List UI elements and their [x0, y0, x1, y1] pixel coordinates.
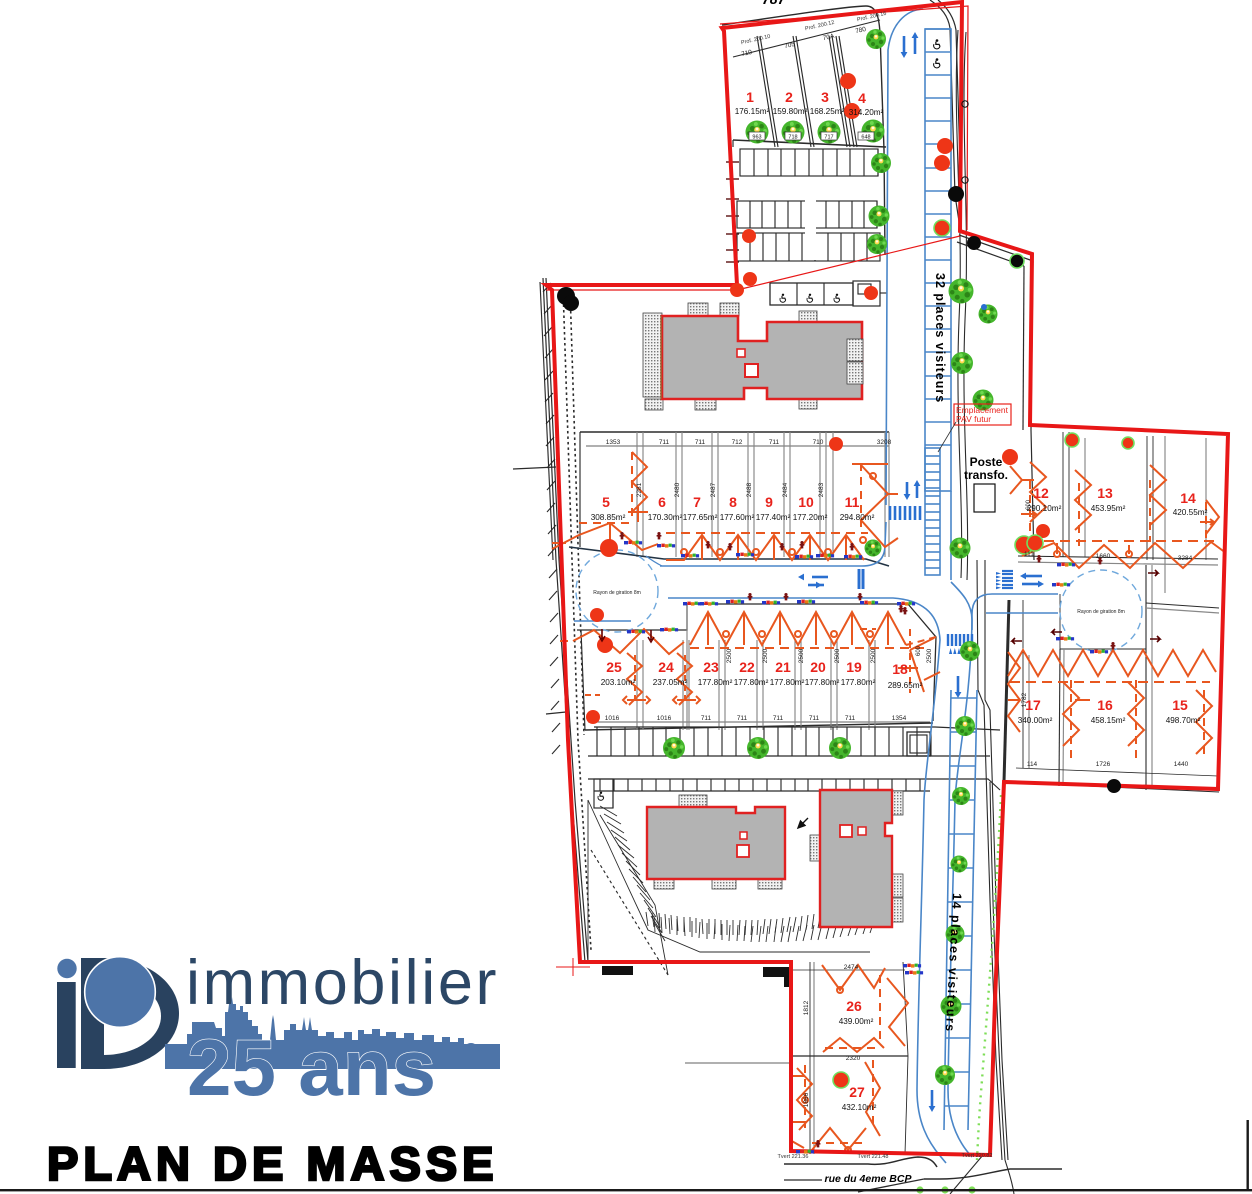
svg-text:718: 718	[788, 135, 797, 141]
svg-text:177.80m²: 177.80m²	[805, 678, 840, 687]
svg-text:transfo.: transfo.	[964, 468, 1008, 482]
svg-text:22: 22	[739, 659, 755, 675]
svg-text:420.55m²: 420.55m²	[1173, 508, 1208, 517]
svg-text:23: 23	[703, 659, 719, 675]
svg-text:14: 14	[1180, 490, 1196, 506]
svg-text:1016: 1016	[605, 715, 620, 722]
svg-text:2500: 2500	[834, 648, 841, 663]
svg-text:314.20m²: 314.20m²	[849, 108, 884, 117]
svg-text:Tvert 220.82: Tvert 220.82	[962, 1153, 993, 1159]
svg-text:170.30m²: 170.30m²	[648, 513, 683, 522]
svg-text:2281: 2281	[636, 482, 643, 497]
svg-text:2320: 2320	[846, 1055, 861, 1062]
svg-text:25 ans: 25 ans	[187, 1023, 436, 1112]
svg-text:2500: 2500	[870, 648, 877, 663]
svg-text:12: 12	[1033, 485, 1049, 501]
svg-text:432.10m²: 432.10m²	[842, 1103, 877, 1112]
svg-text:26: 26	[846, 998, 862, 1014]
svg-text:600: 600	[1026, 499, 1032, 510]
svg-text:1354: 1354	[892, 715, 907, 722]
svg-text:1866: 1866	[803, 1092, 810, 1107]
svg-text:711: 711	[773, 715, 784, 722]
svg-text:177.60m²: 177.60m²	[720, 513, 755, 522]
svg-text:18: 18	[892, 661, 908, 677]
svg-text:439.00m²: 439.00m²	[839, 1017, 874, 1026]
svg-text:1660: 1660	[1096, 553, 1111, 560]
svg-text:Tvert 221.48: Tvert 221.48	[858, 1154, 889, 1160]
svg-text:3: 3	[821, 89, 829, 105]
svg-text:176.15m²: 176.15m²	[735, 107, 770, 116]
svg-text:32 places visiteurs: 32 places visiteurs	[933, 273, 947, 403]
svg-text:16: 16	[1097, 697, 1113, 713]
svg-text:711: 711	[695, 439, 706, 446]
svg-text:20: 20	[810, 659, 826, 675]
svg-text:PLAN DE MASSE: PLAN DE MASSE	[47, 1137, 499, 1190]
svg-text:2488: 2488	[746, 482, 753, 497]
svg-text:2500: 2500	[798, 648, 805, 663]
svg-text:177.65m²: 177.65m²	[683, 513, 718, 522]
svg-text:203.10m²: 203.10m²	[601, 678, 636, 687]
svg-text:3208: 3208	[877, 439, 892, 446]
svg-text:1726: 1726	[1096, 761, 1111, 768]
svg-text:2500: 2500	[726, 648, 733, 663]
svg-text:177.20m²: 177.20m²	[793, 513, 828, 522]
svg-text:453.95m²: 453.95m²	[1091, 504, 1126, 513]
svg-text:294.80m²: 294.80m²	[840, 513, 875, 522]
svg-text:19: 19	[846, 659, 862, 675]
svg-text:2484: 2484	[782, 482, 789, 497]
svg-text:963: 963	[752, 135, 761, 141]
svg-text:PAV futur: PAV futur	[956, 414, 991, 424]
svg-text:1782: 1782	[1021, 692, 1028, 707]
svg-text:600: 600	[916, 645, 922, 656]
svg-text:rue du 4eme BCP: rue du 4eme BCP	[825, 1173, 913, 1185]
svg-text:6: 6	[658, 494, 666, 510]
svg-text:711: 711	[659, 439, 670, 446]
svg-text:2500: 2500	[926, 648, 933, 663]
svg-text:177.80m²: 177.80m²	[841, 678, 876, 687]
svg-text:1440: 1440	[1174, 761, 1189, 768]
svg-text:177.80m²: 177.80m²	[770, 678, 805, 687]
svg-text:2474: 2474	[844, 964, 859, 971]
svg-text:Rayon de giration 8m: Rayon de giration 8m	[1077, 609, 1125, 615]
svg-text:2480: 2480	[674, 482, 681, 497]
svg-text:159.80m²: 159.80m²	[773, 107, 808, 116]
svg-text:24: 24	[658, 659, 674, 675]
svg-text:114: 114	[1027, 761, 1038, 768]
svg-text:2487: 2487	[710, 482, 717, 497]
svg-text:8: 8	[729, 494, 737, 510]
svg-text:7: 7	[693, 494, 701, 510]
svg-text:711: 711	[809, 715, 820, 722]
svg-text:2: 2	[785, 89, 793, 105]
svg-text:5: 5	[602, 494, 610, 510]
svg-text:458.15m²: 458.15m²	[1091, 716, 1126, 725]
svg-text:648: 648	[861, 135, 870, 141]
svg-text:11: 11	[845, 494, 860, 510]
svg-text:2500: 2500	[762, 648, 769, 663]
svg-text:177.80m²: 177.80m²	[734, 678, 769, 687]
svg-text:2483: 2483	[818, 482, 825, 497]
svg-text:10: 10	[798, 494, 814, 510]
svg-text:711: 711	[737, 715, 748, 722]
svg-text:711: 711	[701, 715, 712, 722]
svg-text:712: 712	[732, 439, 743, 446]
svg-text:111: 111	[1024, 551, 1034, 558]
svg-text:711: 711	[769, 439, 780, 446]
svg-text:787: 787	[762, 0, 787, 7]
svg-text:177.80m²: 177.80m²	[698, 678, 733, 687]
svg-text:15: 15	[1172, 697, 1188, 713]
svg-text:1812: 1812	[803, 1000, 810, 1015]
svg-text:717: 717	[824, 135, 833, 141]
svg-text:308.85m²: 308.85m²	[591, 513, 626, 522]
svg-text:27: 27	[849, 1084, 865, 1100]
svg-text:4: 4	[858, 90, 866, 106]
svg-text:289.65m²: 289.65m²	[888, 681, 923, 690]
svg-text:Poste: Poste	[970, 455, 1003, 469]
svg-text:237.05m²: 237.05m²	[653, 678, 688, 687]
svg-text:1353: 1353	[606, 439, 621, 446]
svg-text:1: 1	[746, 89, 754, 105]
svg-text:9: 9	[765, 494, 773, 510]
svg-text:177.40m²: 177.40m²	[756, 513, 791, 522]
svg-text:13: 13	[1097, 485, 1113, 501]
svg-text:710: 710	[813, 439, 824, 446]
svg-text:3284: 3284	[1178, 555, 1193, 562]
svg-text:25: 25	[606, 659, 622, 675]
svg-text:Tvert 221.36: Tvert 221.36	[778, 1154, 809, 1160]
svg-text:498.70m²: 498.70m²	[1166, 716, 1201, 725]
svg-text:168.25m²: 168.25m²	[810, 107, 845, 116]
svg-text:711: 711	[845, 715, 856, 722]
svg-text:Rayon de giration 8m: Rayon de giration 8m	[593, 590, 641, 596]
svg-text:1016: 1016	[657, 715, 672, 722]
svg-text:340.00m²: 340.00m²	[1018, 716, 1053, 725]
svg-text:21: 21	[775, 659, 791, 675]
